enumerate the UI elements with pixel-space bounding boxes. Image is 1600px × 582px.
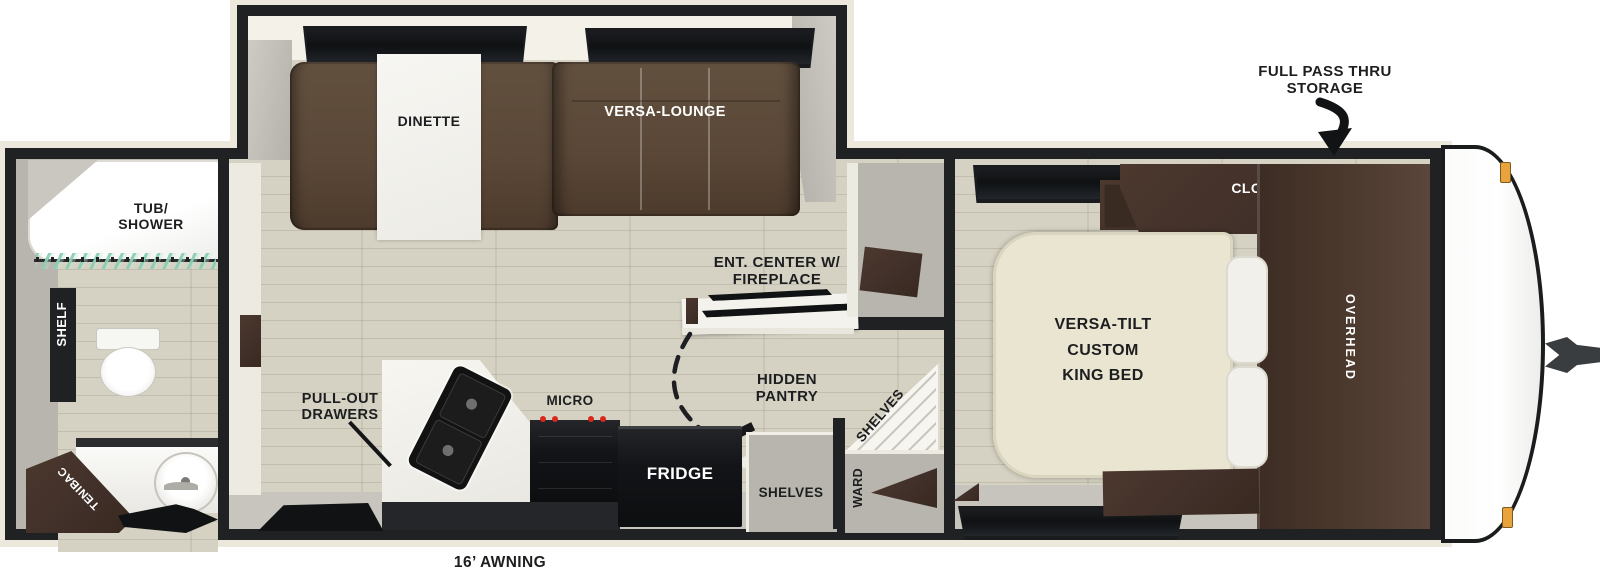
tub-shower-label-line1: TUB/: [86, 201, 216, 217]
dinette-label: DINETTE: [377, 114, 481, 130]
full-pass-thru-line1: FULL PASS THRU: [1215, 64, 1435, 81]
king-bed: VERSA-TILT CUSTOM KING BED: [993, 232, 1233, 478]
full-pass-thru-label: FULL PASS THRU STORAGE: [1215, 64, 1435, 98]
pillow-1: [1226, 256, 1268, 364]
awning-label: 16’ AWNING: [400, 554, 600, 571]
left-wall-niche: [240, 315, 261, 367]
fridge-label: FRIDGE: [618, 464, 742, 483]
toilet-bowl: [100, 347, 156, 397]
bathroom: TUB/ SHOWER SHELF CABINET: [16, 159, 218, 529]
shelf-unit: SHELF: [50, 288, 76, 402]
ward-label: WARD: [851, 468, 865, 508]
tub-shower-label-line2: SHOWER: [86, 217, 216, 233]
dinette-table: DINETTE: [377, 54, 481, 240]
micro-label: MICRO: [520, 393, 620, 408]
stove-burner-lines: [538, 436, 612, 492]
pull-out-drawers-label: PULL-OUT DRAWERS: [270, 391, 410, 423]
slideout-left-wall-face: [248, 40, 292, 160]
ward-closet: WARD: [845, 450, 944, 533]
hidden-pantry-label-line2: PANTRY: [722, 389, 852, 406]
shelf-label: SHELF: [55, 302, 70, 347]
bedroom-partition-wall: [944, 159, 955, 529]
versa-lounge-label: VERSA-LOUNGE: [570, 104, 760, 120]
stove-knob-1: [540, 416, 546, 422]
bath-partition-wall: [218, 159, 229, 529]
king-bed-label: VERSA-TILT CUSTOM KING BED: [993, 312, 1213, 389]
king-bed-label-line3: KING BED: [993, 363, 1213, 389]
front-cap: [1441, 145, 1545, 543]
marker-light-bottom: [1502, 507, 1513, 528]
marker-light-top: [1500, 162, 1511, 183]
micro-stove: [530, 420, 620, 502]
overhead-label: OVERHEAD: [1343, 294, 1357, 381]
hidden-pantry-label-line1: HIDDEN: [722, 372, 852, 389]
lounge-cushion-seam-1: [640, 68, 642, 210]
floor-plan: TUB/ SHOWER SHELF CABINET: [0, 0, 1600, 582]
versa-lounge-sofa: [552, 62, 800, 216]
sink-faucet: [164, 482, 198, 490]
bed-foot-cabinet: [1103, 469, 1260, 517]
pull-out-drawers-line1: PULL-OUT: [270, 391, 410, 407]
king-bed-label-line1: VERSA-TILT: [993, 312, 1213, 338]
closet-divider-wall: [833, 418, 845, 529]
lounge-back-seam: [572, 100, 780, 102]
overhead-column: OVERHEAD: [1257, 164, 1430, 529]
stove-knob-3: [588, 416, 594, 422]
lounge-cushion-seam-2: [708, 68, 710, 210]
pull-out-drawers-line2: DRAWERS: [270, 407, 410, 423]
pillow-2: [1226, 366, 1268, 468]
pantry-wall-face: [847, 163, 858, 317]
shelves-closet-label: SHELVES: [739, 485, 843, 500]
hidden-pantry-label: HIDDEN PANTRY: [722, 372, 852, 406]
hitch-coupler: [1545, 337, 1600, 373]
ent-center-ledge: [682, 328, 854, 334]
curtain-hooks: [36, 257, 216, 262]
king-bed-label-line2: CUSTOM: [993, 338, 1213, 364]
tub-shower-label: TUB/ SHOWER: [86, 201, 216, 232]
ent-center-end-cabinet: [686, 298, 698, 324]
fridge: FRIDGE: [618, 426, 742, 527]
ward-corner-wedge: [871, 468, 937, 508]
stove-knob-4: [600, 416, 606, 422]
fireplace-back-panel: [860, 247, 923, 298]
shelves-closet: SHELVES: [746, 432, 837, 532]
full-pass-thru-line2: STORAGE: [1215, 81, 1435, 98]
stove-knob-2: [552, 416, 558, 422]
